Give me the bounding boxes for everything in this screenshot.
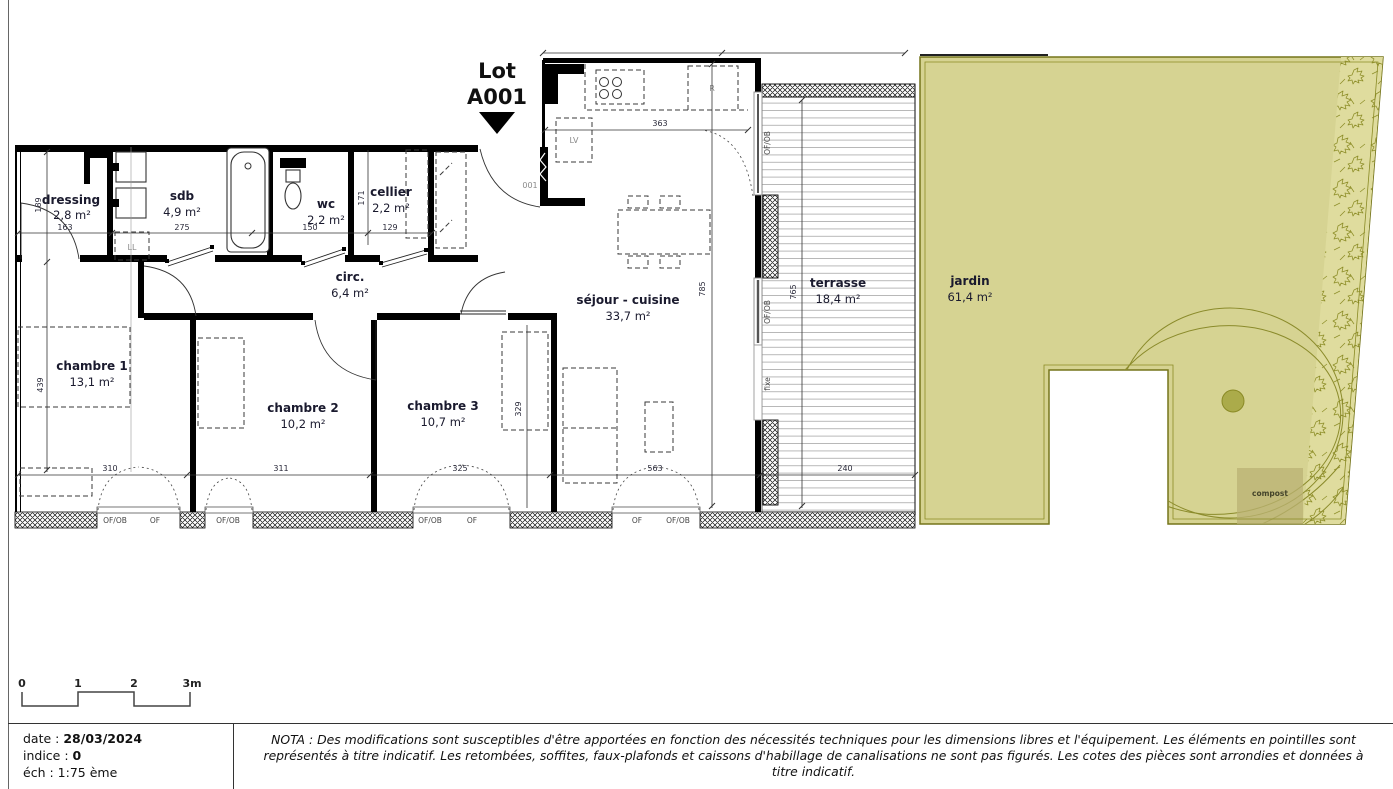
chair <box>660 196 680 208</box>
window-swings <box>98 465 699 510</box>
window-label-4a: OF <box>632 516 642 525</box>
room-area-sejour: 33,7 m² <box>605 309 650 323</box>
room-label-wc: wc <box>317 197 335 211</box>
dishwasher-label: LV <box>569 136 579 145</box>
room-area-chambre1: 13,1 m² <box>69 375 114 389</box>
chair <box>628 196 648 208</box>
door-arc-chambre2 <box>315 320 376 380</box>
walls <box>15 58 761 512</box>
window-1 <box>97 507 180 513</box>
entry-wardrobe <box>436 152 466 248</box>
room-area-cellier: 2,2 m² <box>372 201 410 215</box>
side-window-label-1: OF/OB <box>763 131 772 155</box>
room-label-terrasse: terrasse <box>810 276 866 290</box>
chair <box>660 256 680 268</box>
side-window-label-fixe: fixe <box>763 377 772 391</box>
furniture: LL LV R <box>18 64 748 496</box>
dim-dressing-w: 163 <box>57 223 72 232</box>
room-area-jardin: 61,4 m² <box>947 290 992 304</box>
lot-label: Lot <box>478 59 516 83</box>
dim-sdb-w: 275 <box>174 223 189 232</box>
room-area-wc: 2,2 m² <box>307 213 345 227</box>
jardin-area: compost jardin 61,4 m² <box>920 55 1383 553</box>
sheet-left-border <box>8 0 9 789</box>
room-label-dressing: dressing <box>42 193 100 207</box>
window-label-1b: OF <box>150 516 160 525</box>
lot-pointer-icon <box>479 112 515 134</box>
washing-machine-label: LL <box>128 243 137 252</box>
room-label-chambre3: chambre 3 <box>407 399 478 413</box>
titleblock-scale: éch : 1:75 ème <box>23 764 142 781</box>
date-value: 28/03/2024 <box>63 731 142 746</box>
chair <box>628 256 648 268</box>
dim-cuisine-w: 363 <box>652 119 667 128</box>
scale-tick-0: 0 <box>18 677 26 690</box>
room-area-dressing: 2,8 m² <box>53 208 91 222</box>
terrasse-area: terrasse 18,4 m² <box>762 84 915 515</box>
door-arc-chambre3 <box>461 272 505 314</box>
scale-bar: 0 1 2 3m <box>18 677 201 706</box>
dim-terrasse-w: 240 <box>837 464 852 473</box>
terrace-door-swing <box>702 130 753 196</box>
bed-chambre2 <box>198 338 244 428</box>
room-area-sdb: 4,9 m² <box>163 205 201 219</box>
indice-value: 0 <box>73 748 82 763</box>
toilet-bowl <box>285 183 301 209</box>
room-area-circ: 6,4 m² <box>331 286 369 300</box>
window-label-3a: OF/OB <box>418 516 442 525</box>
side-window-label-2: OF/OB <box>763 300 772 324</box>
door-arc-chambre1 <box>144 266 196 316</box>
cooktop <box>600 78 622 99</box>
room-label-sdb: sdb <box>170 189 195 203</box>
terrasse-pier-2 <box>763 420 778 505</box>
titleblock-info: date : 28/03/2024 indice : 0 éch : 1:75 … <box>23 730 142 781</box>
toilet-tank <box>286 170 300 182</box>
entrance-door-label: 001 <box>522 181 537 190</box>
date-label: date : <box>23 731 59 746</box>
titleblock-indice: indice : 0 <box>23 747 142 764</box>
room-area-terrasse: 18,4 m² <box>815 292 860 306</box>
dim-cellier-w: 129 <box>382 223 397 232</box>
room-label-sejour: séjour - cuisine <box>576 293 679 307</box>
scale-tick-2: 2 <box>130 677 138 690</box>
room-label-circ: circ. <box>336 270 365 284</box>
dim-chambre3-w: 325 <box>452 464 467 473</box>
lot-number: A001 <box>467 85 527 109</box>
room-label-chambre1: chambre 1 <box>56 359 127 373</box>
window-3 <box>413 507 510 513</box>
dim-chambre1-h: 439 <box>36 377 45 392</box>
kitchen-unit <box>544 64 558 104</box>
titleblock-date: date : 28/03/2024 <box>23 730 142 747</box>
kitchen-counter <box>585 64 748 110</box>
desk-chambre1 <box>20 468 92 496</box>
room-area-chambre3: 10,7 m² <box>420 415 465 429</box>
compost-label: compost <box>1252 489 1288 498</box>
tree-trunk <box>1222 390 1244 412</box>
floorplan-drawing: compost jardin 61,4 m² terrasse 18,4 m² <box>0 0 1393 722</box>
dressing-cabinet <box>84 152 110 158</box>
window-label-1a: OF/OB <box>103 516 127 525</box>
scale-label: éch : <box>23 765 54 780</box>
window-4 <box>612 507 700 513</box>
terrasse-top-wall <box>762 84 915 97</box>
room-labels: dressing 2,8 m² sdb 4,9 m² wc 2,2 m² cel… <box>42 185 680 431</box>
window-label-2: OF/OB <box>216 516 240 525</box>
dim-sejour-h: 785 <box>698 281 707 296</box>
dim-cellier-h: 171 <box>357 190 366 205</box>
room-label-chambre2: chambre 2 <box>267 401 338 415</box>
scale-tick-3: 3m <box>182 677 201 690</box>
bed-chambre3 <box>502 332 548 430</box>
wc-cistern <box>280 158 306 168</box>
coffee-table <box>645 402 673 452</box>
sofa <box>563 368 617 483</box>
dim-chambre2-w: 311 <box>273 464 288 473</box>
entrance-door-arc <box>480 149 540 207</box>
floorplan-sheet: compost jardin 61,4 m² terrasse 18,4 m² <box>0 0 1393 789</box>
room-area-chambre2: 10,2 m² <box>280 417 325 431</box>
room-label-jardin: jardin <box>949 274 989 288</box>
nota-text: NOTA : Des modifications sont susceptibl… <box>254 732 1374 780</box>
dim-chambre3-h: 329 <box>514 401 523 416</box>
dining-table <box>618 210 710 254</box>
window-label-3b: OF <box>467 516 477 525</box>
dim-terrasse-h: 765 <box>789 284 798 299</box>
scale-value: 1:75 ème <box>58 765 118 780</box>
terrasse-pier-1 <box>763 195 778 278</box>
entrance-door: 001 <box>480 149 546 207</box>
room-label-cellier: cellier <box>370 185 412 199</box>
window-label-4b: OF/OB <box>666 516 690 525</box>
lot-marker: Lot A001 <box>467 59 527 134</box>
dim-sejour-w: 563 <box>647 464 662 473</box>
indice-label: indice : <box>23 748 69 763</box>
scale-bar-line <box>22 692 190 706</box>
window-2 <box>205 507 253 513</box>
titleblock-nota: NOTA : Des modifications sont susceptibl… <box>234 723 1393 789</box>
scale-tick-1: 1 <box>74 677 82 690</box>
dim-chambre1-w: 310 <box>102 464 117 473</box>
window-fixed <box>754 345 762 420</box>
